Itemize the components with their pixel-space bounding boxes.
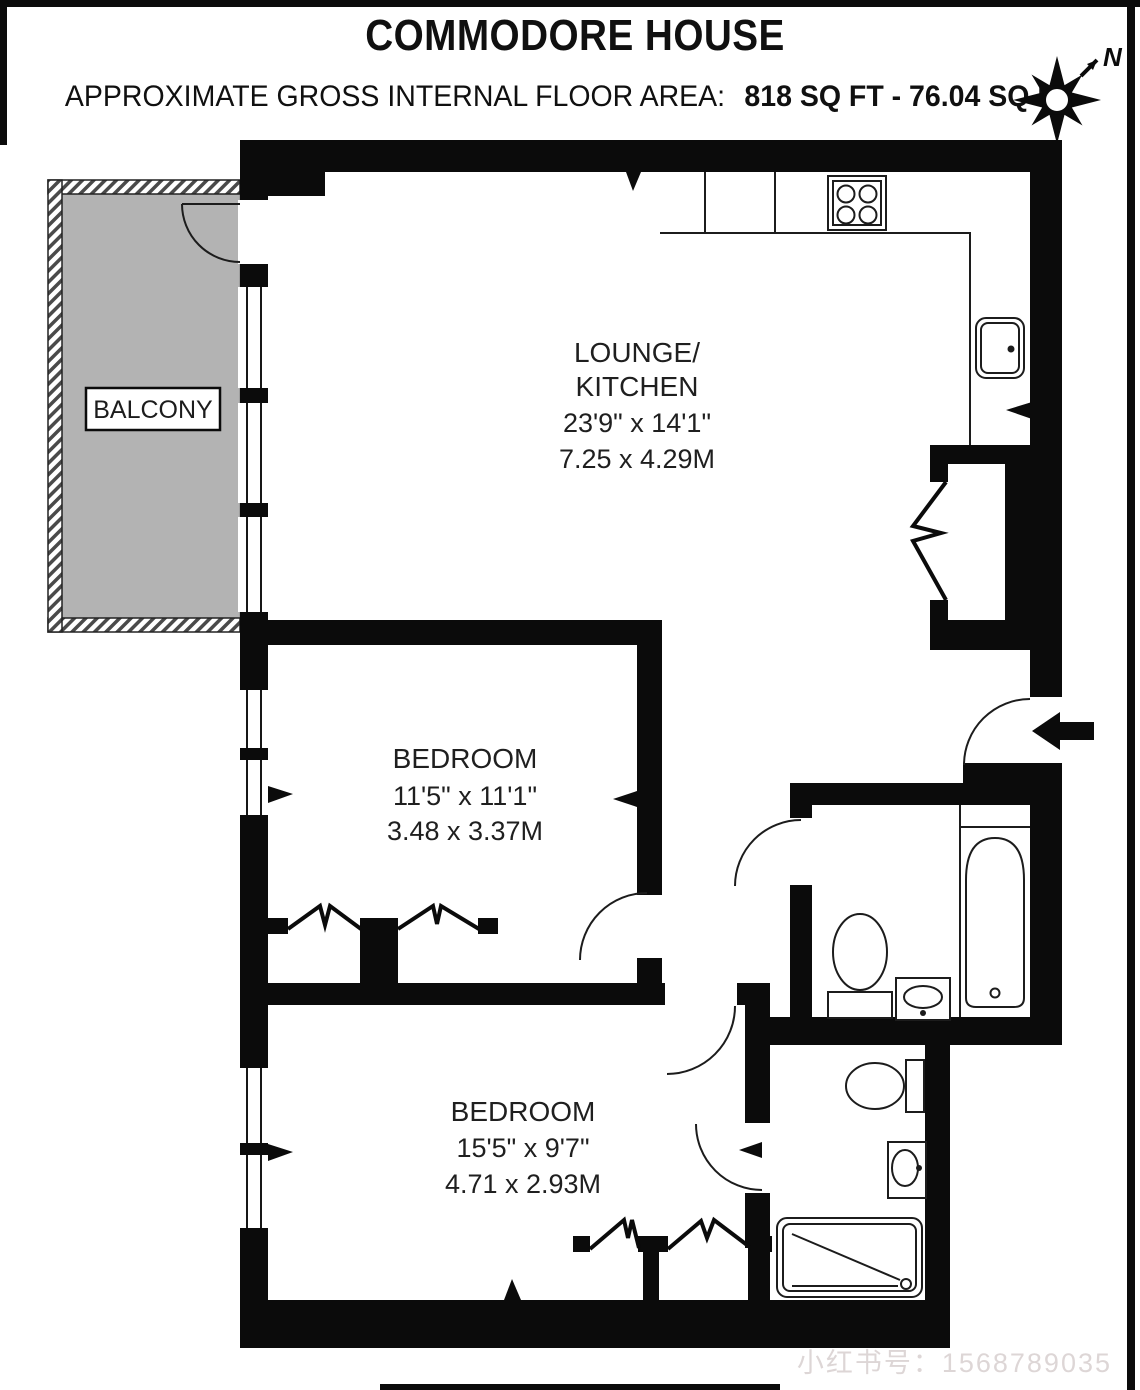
lounge-name-line1: LOUNGE/	[574, 337, 700, 368]
bedroom1-dims-metric: 3.48 x 3.37M	[387, 816, 543, 846]
room-labels: LOUNGE/ KITCHEN 23'9" x 14'1" 7.25 x 4.2…	[387, 337, 715, 1199]
kitchen-counter	[660, 172, 970, 445]
tick-bedroom1-window	[268, 786, 293, 803]
ensuite-toilet-icon	[846, 1060, 924, 1112]
entrance-door	[964, 699, 1030, 765]
bedroom1-label: BEDROOM 11'5" x 11'1" 3.48 x 3.37M	[387, 743, 543, 846]
tick-bottom-wall	[504, 1279, 521, 1300]
bedroom1-door	[580, 893, 647, 960]
area-value: 818 SQ FT - 76.04 SQ M	[744, 80, 1061, 113]
watermark-text: 小红书号：1568789035	[797, 1348, 1112, 1378]
lounge-dims-metric: 7.25 x 4.29M	[559, 444, 715, 474]
bedroom1-name: BEDROOM	[393, 743, 538, 774]
basin-icon	[896, 978, 950, 1020]
walls	[240, 140, 1062, 1348]
bathroom-door	[735, 820, 801, 886]
tick-ensuite-door	[739, 1142, 762, 1158]
lounge-kitchen-label: LOUNGE/ KITCHEN 23'9" x 14'1" 7.25 x 4.2…	[559, 337, 715, 474]
area-line: APPROXIMATE GROSS INTERNAL FLOOR AREA: 8…	[65, 80, 1061, 113]
bedroom2-wardrobe-left	[590, 1220, 639, 1249]
ensuite-basin-icon	[888, 1142, 926, 1198]
bedroom1-wardrobe-left	[288, 906, 361, 929]
bedroom2-dims-imperial: 15'5" x 9'7"	[456, 1133, 589, 1163]
hob-icon	[828, 176, 886, 230]
toilet-icon	[828, 914, 892, 1018]
tick-kitchen-wall	[1006, 402, 1032, 419]
page-title: COMMODORE HOUSE	[365, 10, 785, 60]
plan-header: COMMODORE HOUSE APPROXIMATE GROSS INTERN…	[65, 10, 1061, 114]
balcony-label: BALCONY	[93, 396, 213, 424]
balcony-area: BALCONY	[48, 180, 240, 632]
lounge-dims-imperial: 23'9" x 14'1"	[563, 408, 711, 438]
floorplan-drawing: COMMODORE HOUSE APPROXIMATE GROSS INTERN…	[0, 0, 1140, 1390]
bedroom2-dims-metric: 4.71 x 2.93M	[445, 1169, 601, 1199]
compass-north-label: N	[1103, 42, 1123, 72]
tick-bedroom2-window	[268, 1144, 293, 1161]
floorplan-page: COMMODORE HOUSE APPROXIMATE GROSS INTERN…	[0, 0, 1140, 1390]
bedroom1-wardrobe-right	[398, 906, 479, 929]
bedroom1-dims-imperial: 11'5" x 11'1"	[393, 781, 537, 811]
lounge-name-line2: KITCHEN	[576, 371, 699, 402]
ensuite-door	[696, 1124, 762, 1190]
bedroom2-wardrobe-right	[668, 1220, 751, 1249]
bedroom2-name: BEDROOM	[451, 1096, 596, 1127]
bedroom2-label: BEDROOM 15'5" x 9'7" 4.71 x 2.93M	[445, 1096, 601, 1199]
kitchen-sink-icon	[976, 318, 1024, 378]
bath-icon	[960, 805, 1030, 1017]
bedroom2-door	[667, 1006, 735, 1074]
tick-hall-wall	[613, 791, 637, 807]
tick-top-wall	[626, 172, 641, 191]
area-label: APPROXIMATE GROSS INTERNAL FLOOR AREA:	[65, 80, 725, 113]
shower-tray-icon	[777, 1218, 922, 1297]
